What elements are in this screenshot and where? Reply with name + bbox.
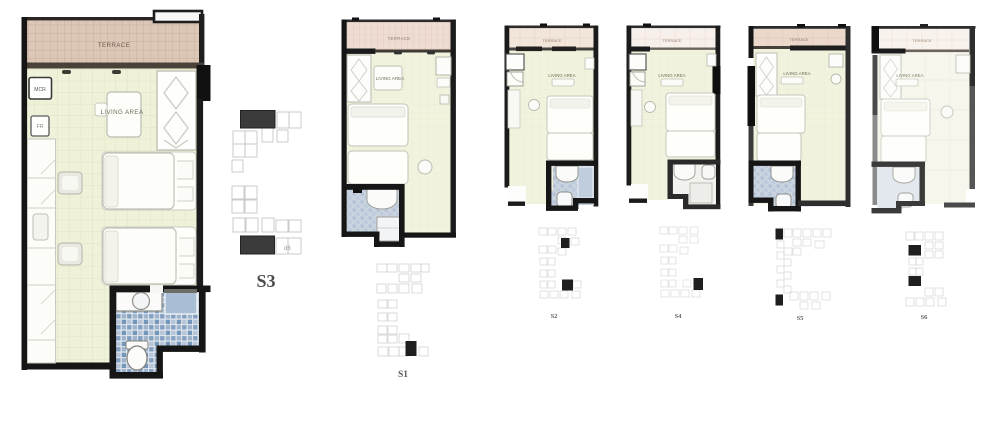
svg-text:LIVING AREA: LIVING AREA xyxy=(658,73,685,78)
svg-text:TERRACE: TERRACE xyxy=(542,38,561,43)
svg-text:LIVING AREA: LIVING AREA xyxy=(101,109,144,116)
svg-text:S5: S5 xyxy=(797,315,805,322)
svg-text:S4: S4 xyxy=(675,313,683,320)
svg-text:S6: S6 xyxy=(921,314,929,321)
svg-text:TERRACE: TERRACE xyxy=(662,38,681,43)
svg-text:LIVING AREA: LIVING AREA xyxy=(548,73,575,78)
svg-text:TERRACE: TERRACE xyxy=(388,36,411,41)
svg-text:MCR: MCR xyxy=(34,87,46,93)
svg-text:FR: FR xyxy=(37,124,44,130)
svg-text:TERRACE: TERRACE xyxy=(912,38,931,43)
svg-text:S1: S1 xyxy=(398,370,408,380)
svg-text:TERRACE: TERRACE xyxy=(98,42,130,49)
svg-text:LIVING AREA: LIVING AREA xyxy=(376,76,406,81)
svg-text:TERRACE: TERRACE xyxy=(789,37,808,42)
svg-text:LIVING AREA: LIVING AREA xyxy=(896,73,923,78)
svg-text:LIVING AREA: LIVING AREA xyxy=(783,71,810,76)
svg-text:S2: S2 xyxy=(551,313,558,320)
svg-text:S3: S3 xyxy=(256,271,275,291)
svg-text:d6: d6 xyxy=(284,246,291,252)
